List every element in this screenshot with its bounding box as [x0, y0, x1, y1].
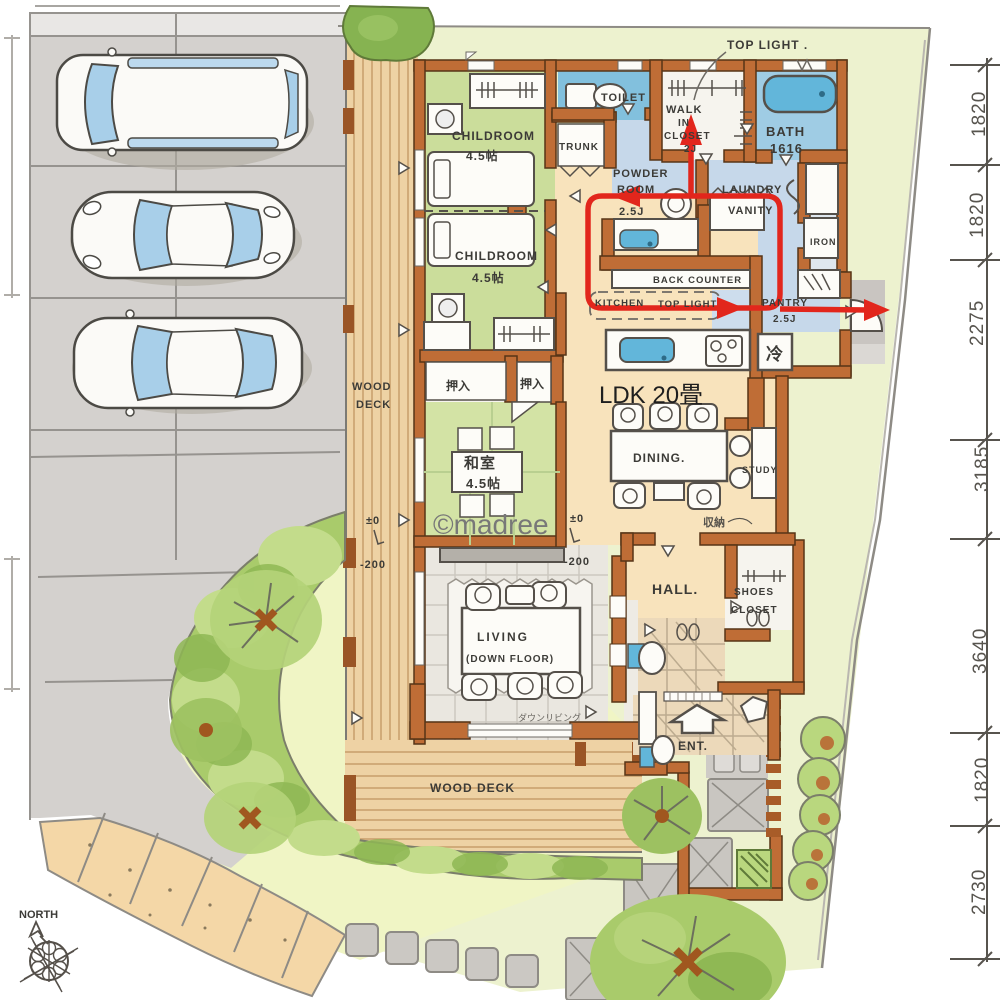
svg-text:HALL.: HALL.	[652, 581, 698, 597]
svg-text:LIVING: LIVING	[477, 630, 529, 644]
svg-text:±0: ±0	[570, 513, 584, 525]
svg-text:IN: IN	[678, 118, 690, 129]
svg-text:4.5帖: 4.5帖	[466, 476, 501, 491]
svg-text:-200: -200	[360, 559, 386, 571]
svg-text:1820: 1820	[967, 192, 988, 238]
svg-text:BACK COUNTER: BACK COUNTER	[653, 275, 742, 286]
svg-text:ダウンリビング: ダウンリビング	[518, 712, 581, 723]
svg-text:2.5J: 2.5J	[619, 206, 644, 218]
svg-text:2730: 2730	[969, 869, 990, 915]
svg-text:CHILDROOM: CHILDROOM	[455, 249, 538, 263]
svg-text:DINING.: DINING.	[633, 451, 685, 465]
svg-text:CLOSET: CLOSET	[731, 605, 778, 616]
svg-text:4.5帖: 4.5帖	[472, 270, 505, 285]
svg-text:TOP LIGHT .: TOP LIGHT .	[727, 38, 808, 52]
svg-text:1820: 1820	[969, 91, 990, 137]
svg-text:和室: 和室	[464, 454, 496, 472]
svg-text:DECK: DECK	[356, 399, 391, 411]
svg-text:ENT.: ENT.	[678, 739, 708, 753]
svg-text:TOILET: TOILET	[601, 92, 646, 104]
svg-text:2275: 2275	[967, 300, 988, 346]
svg-text:3185: 3185	[972, 446, 993, 492]
svg-text:2J: 2J	[684, 144, 697, 155]
svg-text:押入: 押入	[446, 378, 470, 393]
svg-text:STUDY: STUDY	[742, 465, 778, 475]
svg-text:4.5帖: 4.5帖	[466, 148, 499, 163]
svg-text:1616: 1616	[770, 141, 803, 156]
svg-text:©madree: ©madree	[433, 509, 549, 540]
svg-text:NORTH: NORTH	[19, 909, 58, 921]
svg-text:WALK: WALK	[666, 104, 702, 116]
svg-text:3640: 3640	[970, 628, 991, 674]
svg-text:IRON: IRON	[810, 237, 837, 247]
svg-text:LDK 20畳: LDK 20畳	[599, 382, 703, 409]
svg-text:PANTRY: PANTRY	[762, 298, 808, 309]
svg-text:KITCHEN: KITCHEN	[595, 298, 644, 309]
svg-text:(DOWN FLOOR): (DOWN FLOOR)	[466, 654, 554, 665]
svg-text:1820: 1820	[972, 757, 993, 803]
svg-text:SHOES: SHOES	[734, 587, 774, 598]
svg-text:VANITY: VANITY	[728, 205, 774, 217]
svg-text:POWDER: POWDER	[613, 168, 669, 180]
svg-text:-200: -200	[564, 556, 590, 568]
svg-text:LAUNDRY: LAUNDRY	[722, 184, 782, 196]
svg-text:CLOSET: CLOSET	[664, 131, 711, 142]
svg-text:押入: 押入	[520, 376, 544, 391]
svg-text:冷: 冷	[766, 344, 783, 364]
svg-text:±0: ±0	[366, 515, 380, 527]
svg-text:BATH: BATH	[766, 124, 805, 139]
svg-text:収納: 収納	[703, 515, 725, 529]
svg-text:WOOD: WOOD	[352, 381, 391, 393]
svg-text:WOOD DECK: WOOD DECK	[430, 781, 515, 795]
svg-text:TOP LIGHT: TOP LIGHT	[658, 299, 717, 310]
svg-text:CHILDROOM: CHILDROOM	[452, 129, 535, 143]
svg-text:TRUNK: TRUNK	[559, 142, 599, 153]
svg-text:ROOM: ROOM	[617, 184, 655, 196]
svg-text:2.5J: 2.5J	[773, 314, 796, 325]
